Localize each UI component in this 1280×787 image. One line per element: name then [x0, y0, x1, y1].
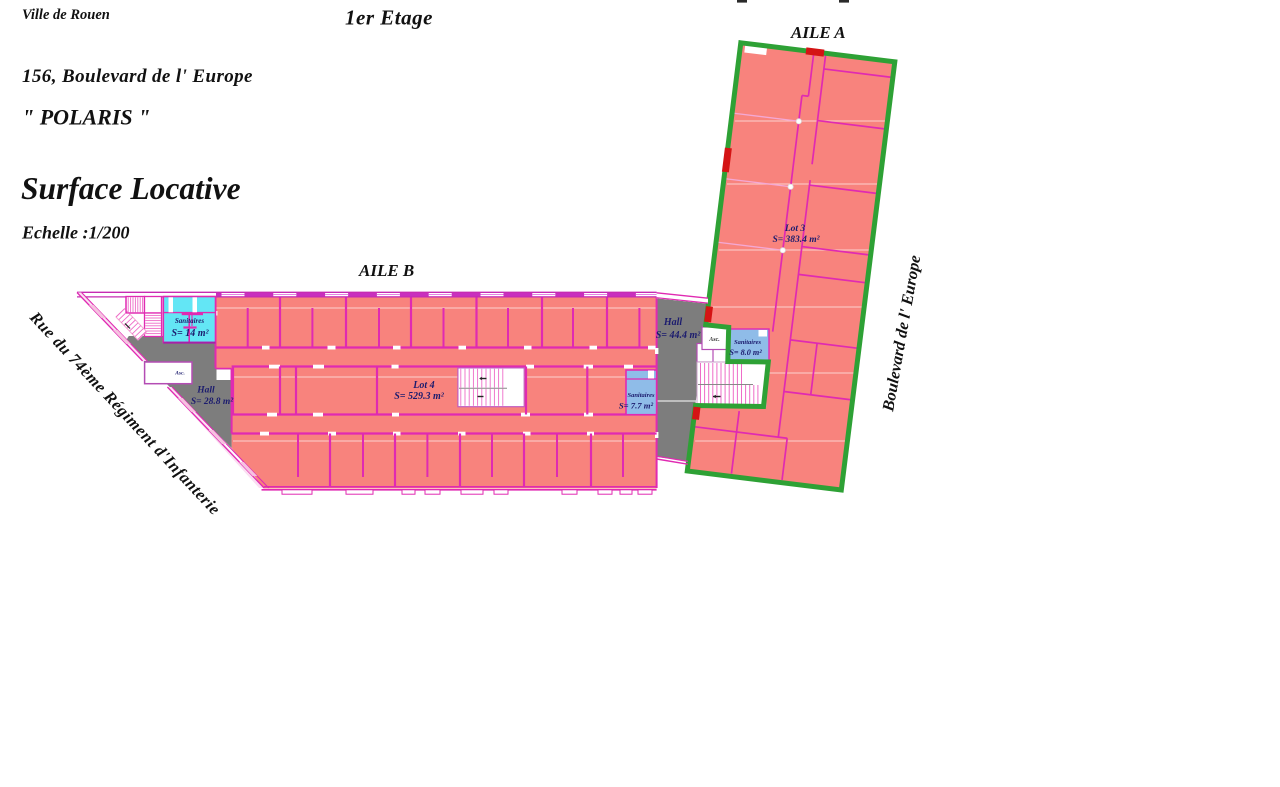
svg-text:S= 8.0 m²: S= 8.0 m²	[729, 348, 762, 357]
svg-text:S= 529.3 m²: S= 529.3 m²	[394, 391, 445, 402]
svg-text:" POLARIS ": " POLARIS "	[22, 105, 150, 130]
svg-text:AILE A: AILE A	[790, 23, 846, 42]
svg-text:S= 44.4 m²: S= 44.4 m²	[656, 330, 702, 341]
svg-text:Lot 4: Lot 4	[412, 380, 434, 391]
svg-text:Ville de Rouen: Ville de Rouen	[22, 7, 110, 23]
svg-text:S= 14 m²: S= 14 m²	[171, 328, 209, 339]
svg-text:Echelle :1/200: Echelle :1/200	[21, 223, 129, 243]
svg-text:Sanitaires: Sanitaires	[175, 317, 204, 325]
svg-text:S= 7.7 m²: S= 7.7 m²	[619, 401, 654, 411]
svg-text:S= 28.8 m²: S= 28.8 m²	[191, 397, 234, 407]
svg-text:AILE B: AILE B	[358, 261, 414, 280]
svg-text:Asc.: Asc.	[708, 337, 720, 343]
svg-text:Lot 3: Lot 3	[784, 224, 806, 234]
svg-text:1er Etage: 1er Etage	[345, 6, 433, 30]
svg-text:Sanitaires: Sanitaires	[734, 339, 762, 346]
svg-text:S= 383.4 m²: S= 383.4 m²	[772, 235, 820, 245]
svg-text:Hall: Hall	[196, 386, 215, 396]
svg-text:156, Boulevard de l' Europe: 156, Boulevard de l' Europe	[22, 66, 253, 87]
svg-text:Surface Locative: Surface Locative	[21, 171, 241, 206]
svg-text:Hall: Hall	[663, 317, 683, 328]
svg-text:Sanitaires: Sanitaires	[627, 392, 655, 399]
svg-text:Asc.: Asc.	[174, 371, 185, 377]
